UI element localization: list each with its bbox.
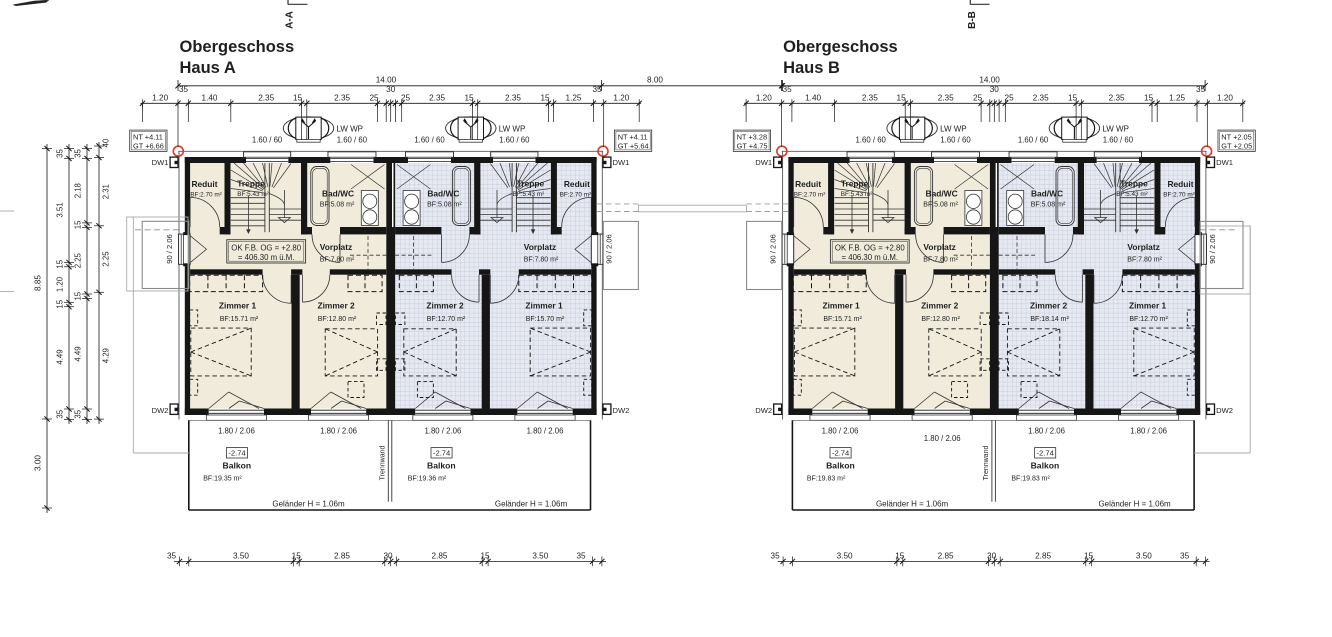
- svg-text:35: 35: [56, 409, 65, 418]
- svg-text:Zimmer 1: Zimmer 1: [822, 301, 860, 311]
- svg-text:Trennwand: Trennwand: [983, 446, 990, 481]
- svg-text:1.20: 1.20: [613, 94, 629, 103]
- svg-text:DW1: DW1: [755, 158, 772, 167]
- svg-text:2.85: 2.85: [334, 551, 350, 560]
- svg-text:BF:19.35 m²: BF:19.35 m²: [203, 476, 242, 483]
- svg-text:15: 15: [56, 259, 65, 268]
- svg-text:1.20: 1.20: [152, 94, 168, 103]
- svg-text:1.80 / 2.06: 1.80 / 2.06: [218, 427, 255, 436]
- svg-text:2.31: 2.31: [102, 184, 111, 199]
- svg-text:30: 30: [383, 551, 393, 560]
- svg-text:GT +4.75: GT +4.75: [737, 141, 768, 150]
- svg-text:-2.74: -2.74: [832, 449, 849, 458]
- svg-text:2.35: 2.35: [429, 94, 445, 103]
- svg-text:Zimmer 2: Zimmer 2: [426, 301, 464, 311]
- svg-text:90 / 2.06: 90 / 2.06: [165, 234, 174, 264]
- svg-text:Bad/WC: Bad/WC: [926, 189, 958, 199]
- svg-text:DW1: DW1: [613, 158, 630, 167]
- svg-text:BF:7.80 m²: BF:7.80 m²: [524, 257, 559, 264]
- svg-text:35: 35: [1180, 551, 1190, 560]
- svg-text:GT +2.05: GT +2.05: [1221, 141, 1252, 150]
- svg-text:GT +5.64: GT +5.64: [618, 141, 649, 150]
- svg-text:B-B: B-B: [967, 11, 978, 29]
- svg-text:Zimmer 2: Zimmer 2: [921, 301, 959, 311]
- svg-text:NT +4.11: NT +4.11: [133, 132, 163, 141]
- svg-text:25: 25: [401, 94, 411, 103]
- svg-text:25: 25: [973, 94, 983, 103]
- svg-text:4.49: 4.49: [74, 346, 83, 361]
- svg-text:3.50: 3.50: [532, 551, 548, 560]
- svg-text:BF:15.70 m²: BF:15.70 m²: [526, 316, 565, 323]
- svg-text:30: 30: [987, 551, 997, 560]
- svg-text:Zimmer 1: Zimmer 1: [525, 301, 563, 311]
- svg-text:BF:18.14 m²: BF:18.14 m²: [1030, 316, 1069, 323]
- svg-text:Balkon: Balkon: [826, 461, 855, 471]
- svg-text:BF:5.08 m²: BF:5.08 m²: [1031, 202, 1066, 209]
- svg-text:1.80 / 2.06: 1.80 / 2.06: [1028, 427, 1065, 436]
- svg-text:2.18: 2.18: [74, 183, 83, 198]
- svg-text:OK F.B. OG = +2.80: OK F.B. OG = +2.80: [835, 244, 905, 253]
- svg-text:15: 15: [292, 551, 302, 560]
- svg-text:Obergeschoss: Obergeschoss: [783, 38, 898, 56]
- svg-text:35: 35: [1196, 85, 1206, 94]
- svg-text:8.00: 8.00: [647, 76, 663, 85]
- svg-text:-2.74: -2.74: [228, 449, 245, 458]
- svg-text:BF:5.08 m²: BF:5.08 m²: [320, 202, 355, 209]
- svg-text:Haus A: Haus A: [180, 59, 236, 77]
- svg-text:GT +6.66: GT +6.66: [133, 141, 164, 150]
- svg-text:= 406.30 m ü.M.: = 406.30 m ü.M.: [842, 253, 899, 262]
- svg-text:15: 15: [540, 94, 550, 103]
- svg-text:1.20: 1.20: [56, 276, 65, 292]
- svg-text:3.50: 3.50: [1136, 551, 1152, 560]
- svg-text:-2.74: -2.74: [433, 449, 450, 458]
- svg-text:LW WP: LW WP: [940, 125, 967, 134]
- svg-text:1.60 / 60: 1.60 / 60: [1103, 135, 1134, 144]
- svg-text:Vorplatz: Vorplatz: [524, 242, 556, 252]
- svg-text:Vorplatz: Vorplatz: [923, 242, 955, 252]
- svg-text:BF:2.70 m²: BF:2.70 m²: [560, 192, 592, 199]
- svg-text:Treppe: Treppe: [1120, 179, 1148, 189]
- svg-text:4.49: 4.49: [56, 349, 65, 364]
- svg-text:90 / 2.06: 90 / 2.06: [1208, 234, 1217, 264]
- svg-text:35: 35: [576, 551, 586, 560]
- svg-text:BF:2.70 m²: BF:2.70 m²: [190, 192, 222, 199]
- svg-text:BF:7.80 m²: BF:7.80 m²: [1127, 257, 1162, 264]
- svg-text:Trennwand: Trennwand: [380, 446, 387, 481]
- svg-text:Geländer H = 1.06m: Geländer H = 1.06m: [1098, 500, 1171, 509]
- svg-text:40: 40: [102, 138, 111, 147]
- svg-text:-2.74: -2.74: [1037, 449, 1054, 458]
- svg-text:BF:15.71 m²: BF:15.71 m²: [823, 316, 862, 323]
- svg-text:Treppe: Treppe: [517, 179, 545, 189]
- svg-text:15: 15: [897, 94, 907, 103]
- svg-text:15: 15: [1084, 551, 1094, 560]
- svg-text:30: 30: [990, 85, 1000, 94]
- svg-text:BF:5.43 m²: BF:5.43 m²: [513, 191, 545, 198]
- svg-text:DW1: DW1: [1216, 158, 1233, 167]
- svg-text:1.60 / 60: 1.60 / 60: [252, 135, 283, 144]
- svg-text:Vorplatz: Vorplatz: [1127, 242, 1159, 252]
- svg-text:4.29: 4.29: [102, 348, 111, 363]
- svg-text:BF:2.70 m²: BF:2.70 m²: [1163, 192, 1195, 199]
- svg-text:2.35: 2.35: [1109, 94, 1125, 103]
- svg-text:BF:7.80 m²: BF:7.80 m²: [923, 257, 958, 264]
- svg-text:NT +2.05: NT +2.05: [1221, 132, 1251, 141]
- svg-text:1.60 / 60: 1.60 / 60: [499, 135, 530, 144]
- svg-text:2.35: 2.35: [1033, 94, 1049, 103]
- svg-text:1.40: 1.40: [805, 94, 821, 103]
- svg-text:1.60 / 60: 1.60 / 60: [414, 135, 445, 144]
- svg-text:2.35: 2.35: [334, 94, 350, 103]
- svg-text:BF:5.43 m²: BF:5.43 m²: [237, 191, 269, 198]
- svg-text:Zimmer 2: Zimmer 2: [1030, 301, 1068, 311]
- svg-text:BF:15.71 m²: BF:15.71 m²: [220, 316, 259, 323]
- svg-text:Bad/WC: Bad/WC: [427, 189, 459, 199]
- svg-text:14.00: 14.00: [979, 76, 1000, 85]
- svg-text:BF:12.70 m²: BF:12.70 m²: [1129, 316, 1168, 323]
- svg-text:Vorplatz: Vorplatz: [320, 242, 352, 252]
- svg-text:35: 35: [56, 149, 65, 158]
- svg-text:Reduit: Reduit: [795, 179, 821, 189]
- svg-text:1.20: 1.20: [1217, 94, 1233, 103]
- svg-text:1.80 / 2.06: 1.80 / 2.06: [1130, 427, 1167, 436]
- svg-text:2.25: 2.25: [74, 252, 83, 268]
- svg-text:3.50: 3.50: [837, 551, 853, 560]
- svg-text:8.85: 8.85: [34, 275, 43, 291]
- svg-text:2.85: 2.85: [432, 551, 448, 560]
- svg-text:Haus B: Haus B: [783, 59, 840, 77]
- svg-text:15: 15: [480, 551, 490, 560]
- svg-text:1.80 / 2.06: 1.80 / 2.06: [424, 427, 461, 436]
- svg-text:15: 15: [74, 220, 83, 229]
- svg-text:15: 15: [1068, 94, 1078, 103]
- svg-text:DW2: DW2: [152, 406, 169, 415]
- svg-text:BF:19.83 m²: BF:19.83 m²: [1011, 476, 1050, 483]
- svg-text:25: 25: [1005, 94, 1015, 103]
- svg-text:BF:12.70 m²: BF:12.70 m²: [427, 316, 466, 323]
- svg-text:2.85: 2.85: [1035, 551, 1051, 560]
- svg-text:35: 35: [783, 85, 793, 94]
- svg-text:35: 35: [179, 85, 189, 94]
- svg-text:Reduit: Reduit: [191, 179, 217, 189]
- svg-text:1.80 / 2.06: 1.80 / 2.06: [924, 434, 961, 443]
- svg-text:2.35: 2.35: [505, 94, 521, 103]
- svg-text:90 / 2.06: 90 / 2.06: [605, 234, 614, 264]
- svg-text:2.35: 2.35: [938, 94, 954, 103]
- svg-text:DW2: DW2: [1216, 406, 1233, 415]
- svg-text:BF:5.43 m²: BF:5.43 m²: [841, 191, 873, 198]
- svg-text:2.35: 2.35: [862, 94, 878, 103]
- svg-text:1.60 / 60: 1.60 / 60: [337, 135, 368, 144]
- svg-text:3.50: 3.50: [233, 551, 249, 560]
- svg-text:35: 35: [74, 149, 83, 158]
- svg-text:NT +4.11: NT +4.11: [618, 132, 648, 141]
- svg-text:LW WP: LW WP: [499, 125, 526, 134]
- svg-text:Reduit: Reduit: [1167, 179, 1193, 189]
- svg-text:Balkon: Balkon: [223, 461, 252, 471]
- svg-text:DW2: DW2: [613, 406, 630, 415]
- svg-text:A-A: A-A: [285, 11, 296, 29]
- svg-text:Zimmer 1: Zimmer 1: [1129, 301, 1167, 311]
- svg-text:Treppe: Treppe: [237, 179, 265, 189]
- svg-text:Treppe: Treppe: [841, 179, 869, 189]
- svg-text:2.25: 2.25: [102, 251, 111, 267]
- svg-text:35: 35: [74, 409, 83, 418]
- svg-text:Obergeschoss: Obergeschoss: [180, 38, 295, 56]
- svg-text:BF:2.70 m²: BF:2.70 m²: [794, 192, 826, 199]
- svg-text:BF:19.36 m²: BF:19.36 m²: [408, 476, 447, 483]
- svg-text:1.25: 1.25: [1169, 94, 1185, 103]
- svg-text:Balkon: Balkon: [1031, 461, 1060, 471]
- svg-text:1.80 / 2.06: 1.80 / 2.06: [822, 427, 859, 436]
- svg-text:3.51: 3.51: [56, 202, 65, 217]
- svg-text:1.80 / 2.06: 1.80 / 2.06: [527, 427, 564, 436]
- svg-text:LW WP: LW WP: [1102, 125, 1129, 134]
- svg-text:35: 35: [592, 85, 602, 94]
- svg-text:LW WP: LW WP: [337, 125, 364, 134]
- svg-text:Geländer H = 1.06m: Geländer H = 1.06m: [876, 500, 949, 509]
- svg-text:1.80 / 2.06: 1.80 / 2.06: [320, 427, 357, 436]
- svg-text:35: 35: [771, 551, 781, 560]
- svg-text:1.60 / 60: 1.60 / 60: [856, 135, 887, 144]
- svg-text:2.85: 2.85: [938, 551, 954, 560]
- svg-text:15: 15: [293, 94, 303, 103]
- svg-text:Zimmer 2: Zimmer 2: [317, 301, 355, 311]
- svg-text:Geländer H = 1.06m: Geländer H = 1.06m: [272, 500, 345, 509]
- svg-text:OK F.B. OG = +2.80: OK F.B. OG = +2.80: [231, 244, 301, 253]
- svg-text:1.25: 1.25: [566, 94, 582, 103]
- svg-text:BF:5.43 m²: BF:5.43 m²: [1116, 191, 1148, 198]
- svg-text:Bad/WC: Bad/WC: [1031, 189, 1063, 199]
- svg-text:1.20: 1.20: [756, 94, 772, 103]
- svg-text:1.60 / 60: 1.60 / 60: [940, 135, 971, 144]
- svg-text:BF:12.80 m²: BF:12.80 m²: [921, 316, 960, 323]
- svg-text:Bad/WC: Bad/WC: [322, 189, 354, 199]
- svg-text:2.35: 2.35: [258, 94, 274, 103]
- svg-text:15: 15: [1144, 94, 1154, 103]
- svg-text:DW2: DW2: [755, 406, 772, 415]
- svg-text:BF:5.08 m²: BF:5.08 m²: [427, 202, 462, 209]
- svg-text:BF:7.80 m²: BF:7.80 m²: [320, 257, 355, 264]
- svg-text:Reduit: Reduit: [564, 179, 590, 189]
- svg-text:= 406.30 m ü.M.: = 406.30 m ü.M.: [238, 253, 295, 262]
- svg-text:14.00: 14.00: [376, 76, 397, 85]
- svg-text:90 / 2.06: 90 / 2.06: [769, 234, 778, 264]
- svg-text:Geländer H = 1.06m: Geländer H = 1.06m: [495, 500, 568, 509]
- svg-text:1.60 / 60: 1.60 / 60: [1018, 135, 1049, 144]
- svg-text:15: 15: [464, 94, 474, 103]
- svg-text:3.00: 3.00: [34, 455, 43, 471]
- svg-text:BF:12.80 m²: BF:12.80 m²: [318, 316, 357, 323]
- svg-text:DW1: DW1: [152, 158, 169, 167]
- svg-text:35: 35: [167, 551, 177, 560]
- svg-text:25: 25: [369, 94, 379, 103]
- svg-text:15: 15: [895, 551, 905, 560]
- svg-text:Zimmer 1: Zimmer 1: [219, 301, 257, 311]
- svg-text:Balkon: Balkon: [427, 461, 456, 471]
- svg-text:15: 15: [74, 291, 83, 300]
- svg-text:NT +3.28: NT +3.28: [737, 132, 767, 141]
- svg-text:1.40: 1.40: [202, 94, 218, 103]
- svg-text:BF:19.83 m²: BF:19.83 m²: [807, 476, 846, 483]
- svg-text:30: 30: [386, 85, 396, 94]
- svg-text:BF:5.08 m²: BF:5.08 m²: [923, 202, 958, 209]
- svg-text:15: 15: [56, 299, 65, 308]
